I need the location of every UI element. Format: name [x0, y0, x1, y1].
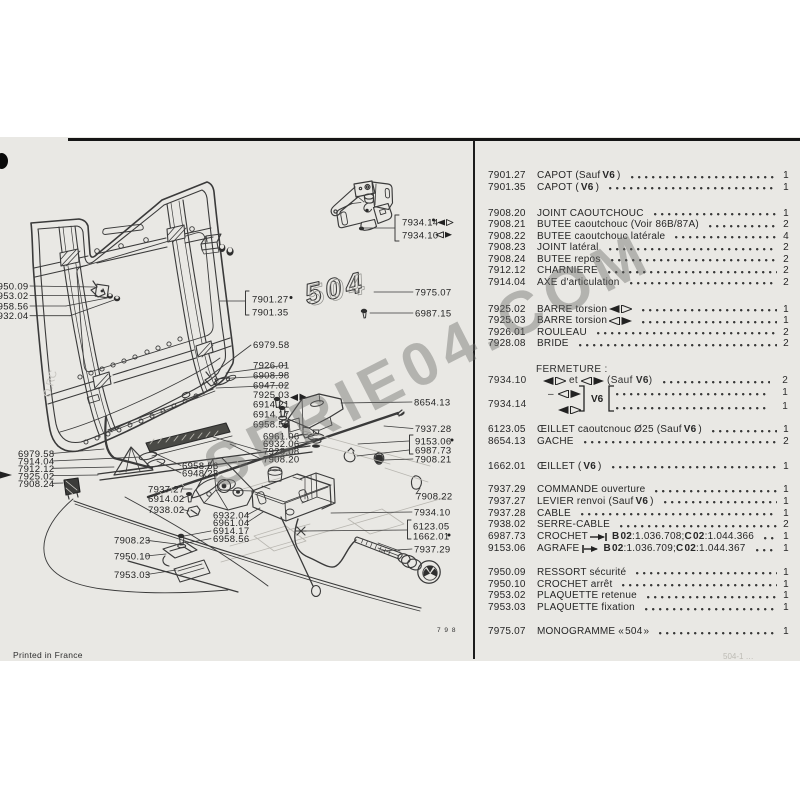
svg-text:V6: V6	[591, 394, 604, 405]
svg-text:8654.13: 8654.13	[414, 398, 450, 409]
svg-text:7901.35: 7901.35	[252, 308, 288, 319]
svg-text:504: 504	[305, 268, 373, 313]
svg-text:7953.03: 7953.03	[114, 570, 150, 581]
svg-text:7975.07: 7975.07	[415, 288, 451, 299]
svg-text:7908.21: 7908.21	[415, 455, 451, 466]
svg-text:7908.22: 7908.22	[416, 492, 452, 503]
svg-text:6987.15: 6987.15	[415, 309, 451, 320]
svg-text:1662.01: 1662.01	[413, 532, 449, 543]
svg-text:6979.58: 6979.58	[253, 340, 289, 351]
svg-text:7908.23: 7908.23	[114, 536, 150, 547]
svg-text:7950.10: 7950.10	[114, 552, 150, 563]
svg-text:6958.56: 6958.56	[253, 420, 289, 431]
svg-text:6948.23: 6948.23	[182, 469, 218, 480]
svg-text:7901.27: 7901.27	[252, 295, 288, 306]
svg-text:953.02: 953.02	[0, 291, 29, 302]
svg-text:7934.10: 7934.10	[414, 508, 450, 519]
svg-text:7908.24: 7908.24	[18, 479, 54, 490]
svg-text:6958.56: 6958.56	[213, 534, 249, 545]
svg-text:7938.02: 7938.02	[148, 505, 184, 516]
svg-text:6914.02: 6914.02	[148, 494, 184, 505]
svg-text:7908.20: 7908.20	[263, 455, 299, 466]
svg-text:7937.29: 7937.29	[414, 545, 450, 556]
svg-text:O.RC: O.RC	[41, 369, 60, 399]
svg-text:7937.28: 7937.28	[415, 424, 451, 435]
svg-text:7934.10: 7934.10	[402, 231, 438, 242]
svg-text:932.04: 932.04	[0, 311, 29, 322]
